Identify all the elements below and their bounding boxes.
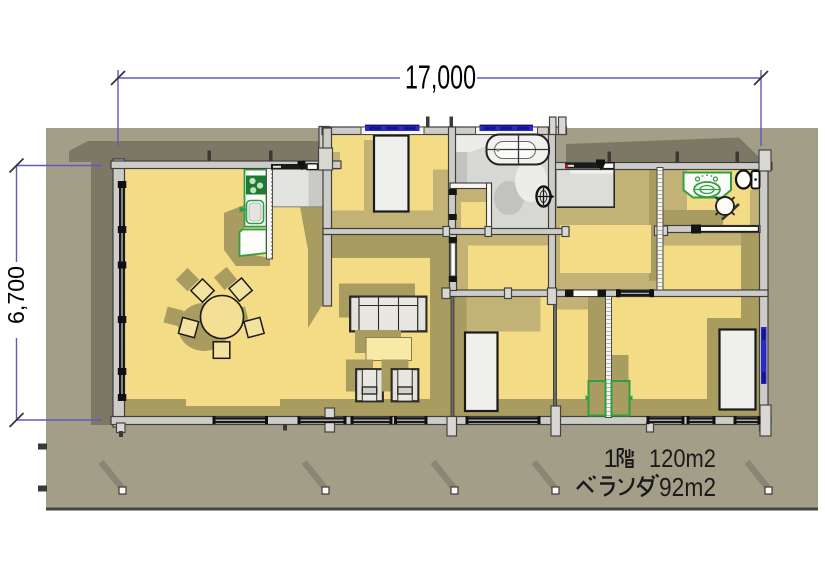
svg-text:120m2: 120m2 — [649, 445, 716, 473]
svg-text:1: 1 — [604, 445, 618, 473]
svg-text:92m2: 92m2 — [659, 472, 716, 502]
svg-text:17,000: 17,000 — [405, 59, 476, 96]
svg-text:6,700: 6,700 — [3, 266, 29, 324]
